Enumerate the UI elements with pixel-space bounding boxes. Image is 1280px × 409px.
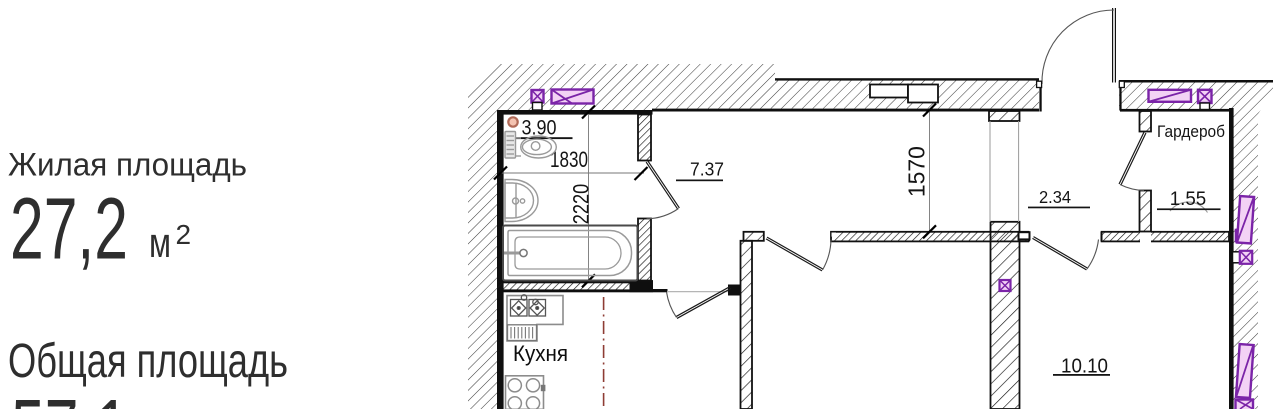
svg-text:2: 2 <box>176 219 192 250</box>
svg-text:2.34: 2.34 <box>1039 187 1071 207</box>
svg-text:Общая площадь: Общая площадь <box>8 335 288 388</box>
svg-text:м: м <box>149 219 171 266</box>
svg-text:1.55: 1.55 <box>1170 189 1207 210</box>
svg-text:Гардероб: Гардероб <box>1157 122 1225 141</box>
svg-text:27,2: 27,2 <box>10 181 128 278</box>
svg-text:1570: 1570 <box>904 146 930 197</box>
svg-text:Кухня: Кухня <box>513 341 568 366</box>
svg-text:2220: 2220 <box>568 184 593 225</box>
svg-text:7.37: 7.37 <box>690 159 724 179</box>
svg-text:57,1: 57,1 <box>11 382 129 409</box>
svg-text:Жилая площадь: Жилая площадь <box>8 147 247 183</box>
